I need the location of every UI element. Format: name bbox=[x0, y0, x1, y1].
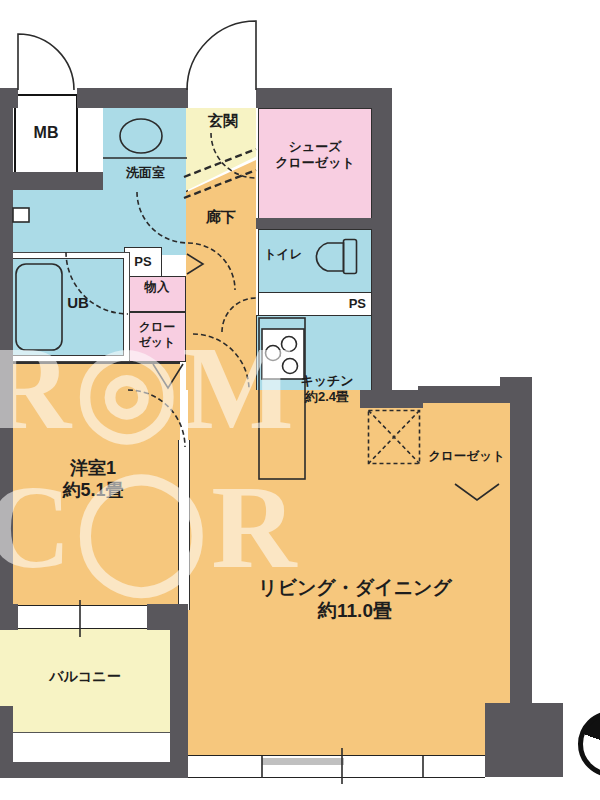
label-kitchen: キッチン 約2.4畳 bbox=[282, 369, 372, 409]
wall-window-cap-left bbox=[0, 604, 18, 630]
label-closet-living: クローゼット bbox=[423, 447, 510, 467]
wall-bottom-right-block bbox=[485, 703, 563, 777]
label-washroom: 洗面室 bbox=[103, 163, 188, 183]
balcony-lower-area bbox=[13, 733, 170, 764]
floor-plan: MB 玄関 シューズ クローゼット 洗面室 廊下 トイレ PS PS 物入 クロ… bbox=[0, 0, 600, 800]
living-window-sash bbox=[262, 758, 344, 765]
wall-balcony-divider bbox=[170, 604, 188, 778]
label-balcony: バルコニー bbox=[15, 666, 155, 688]
label-shoe-closet: シューズ クローゼット bbox=[258, 132, 372, 178]
label-ps-hall: PS bbox=[124, 248, 162, 276]
wall-balcony-bottom bbox=[0, 762, 186, 778]
label-meter-box: MB bbox=[14, 94, 78, 172]
label-genkan: 玄関 bbox=[190, 110, 256, 132]
room-hallway bbox=[186, 160, 256, 390]
label-ps-toilet: PS bbox=[300, 293, 366, 315]
wall-right-mid bbox=[510, 377, 532, 709]
wall-closet-top bbox=[418, 386, 512, 403]
label-closet-hall: クロー ゼット bbox=[128, 314, 186, 356]
mb-door-arc bbox=[18, 34, 74, 90]
label-living-dining: リビング・ダイニング 約11.0畳 bbox=[205, 565, 505, 633]
wall-left bbox=[0, 88, 13, 612]
label-bedroom: 洋室1 約5.1畳 bbox=[23, 447, 163, 513]
bedroom-window bbox=[18, 605, 147, 629]
label-toilet: トイレ bbox=[258, 246, 308, 264]
label-hallway: 廊下 bbox=[194, 206, 248, 228]
brand-logo-icon bbox=[578, 711, 600, 777]
entrance-door-arc bbox=[187, 21, 256, 90]
label-unit-bath: UB bbox=[48, 292, 108, 314]
wall-shoe-toilet bbox=[256, 218, 373, 229]
wall-top-mid bbox=[77, 88, 188, 108]
wall-bedroom-living bbox=[178, 440, 190, 610]
room-washroom-lower bbox=[13, 190, 188, 255]
wall-right-upper bbox=[372, 94, 392, 394]
label-storage: 物入 bbox=[128, 278, 186, 298]
wall-below-mb bbox=[0, 172, 103, 190]
